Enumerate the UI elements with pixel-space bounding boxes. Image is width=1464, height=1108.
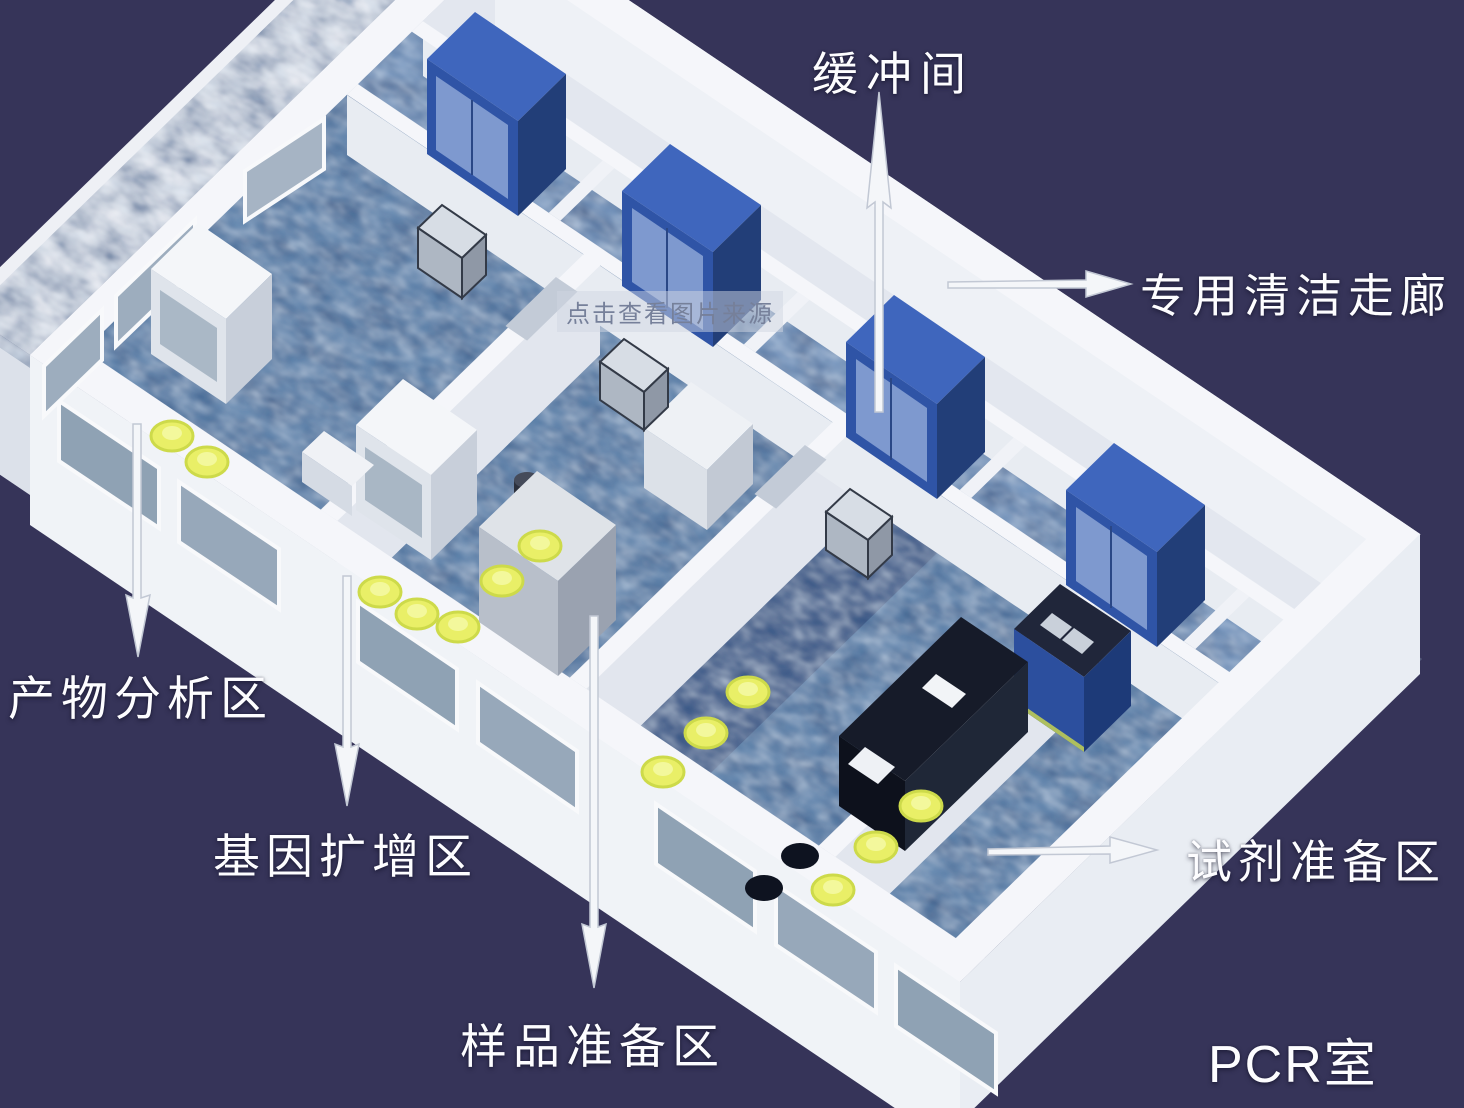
label-pcr-room: PCR室 — [1208, 1022, 1378, 1097]
label-reagent-preparation: 试剂准备区 — [1186, 826, 1446, 892]
label-gene-amplification: 基因扩增区 — [213, 818, 478, 887]
stool — [727, 677, 769, 707]
stool — [812, 875, 854, 905]
chair — [781, 843, 819, 869]
stool — [900, 791, 942, 821]
stool — [855, 832, 897, 862]
stool — [642, 757, 684, 787]
stool — [151, 421, 193, 451]
lab-3d-rendering — [0, 0, 1464, 1108]
pcr-lab-diagram: 缓冲间 专用清洁走廊 产物分析区 基因扩增区 样品准备区 试剂准备区 PCR室 … — [0, 0, 1464, 1108]
stool — [186, 447, 228, 477]
stool — [519, 531, 561, 561]
stool — [481, 566, 523, 596]
label-product-analysis: 产物分析区 — [8, 660, 273, 729]
stool — [685, 718, 727, 748]
stool — [396, 599, 438, 629]
label-clean-corridor: 专用清洁走廊 — [1140, 260, 1452, 326]
chair — [745, 875, 783, 901]
label-sample-preparation: 样品准备区 — [460, 1008, 725, 1077]
label-buffer-room: 缓冲间 — [812, 38, 974, 104]
stool — [437, 612, 479, 642]
watermark-image-source-link[interactable]: 点击查看图片来源 — [557, 291, 783, 332]
stool — [359, 577, 401, 607]
